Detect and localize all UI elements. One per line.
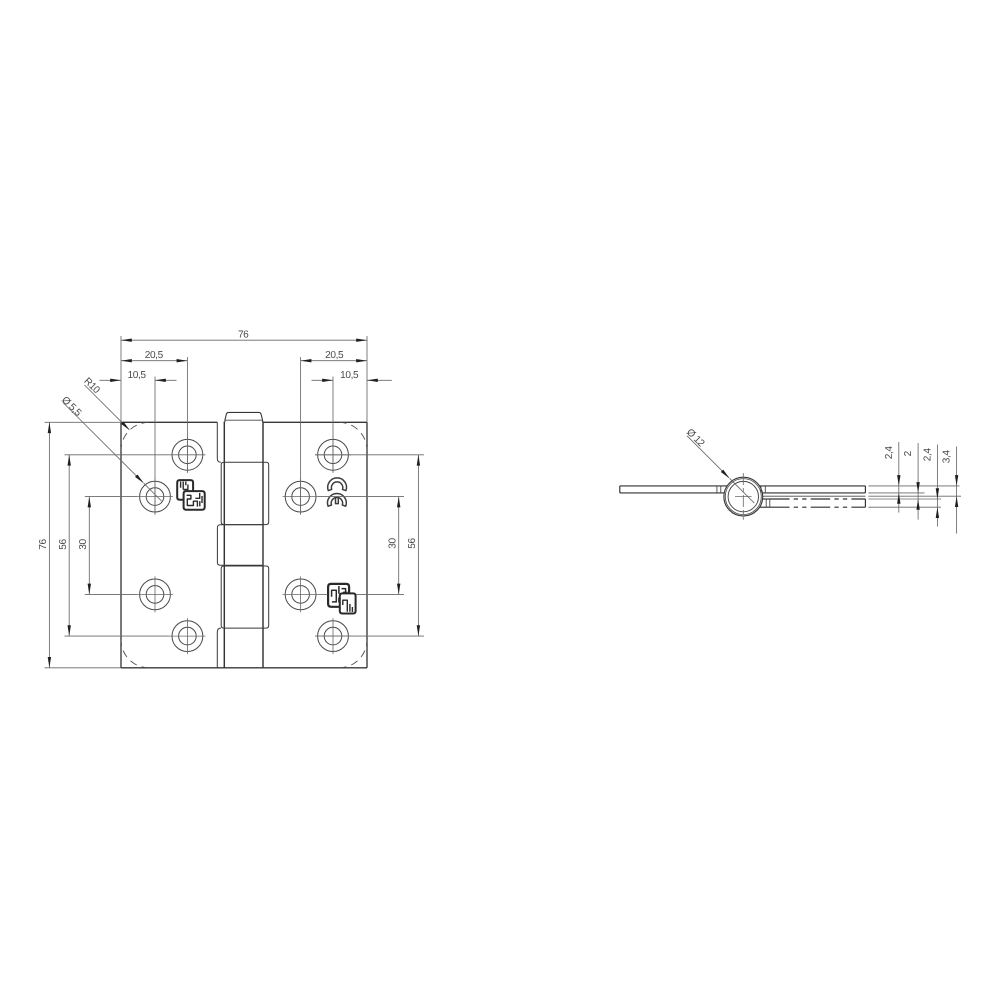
- svg-text:30: 30: [78, 539, 89, 550]
- svg-text:20,5: 20,5: [145, 350, 164, 361]
- svg-text:30: 30: [388, 538, 399, 549]
- svg-text:2,4: 2,4: [922, 448, 933, 462]
- svg-text:2,4: 2,4: [884, 446, 895, 460]
- svg-text:Ø 12: Ø 12: [684, 427, 707, 450]
- svg-text:56: 56: [407, 538, 418, 549]
- svg-text:R10: R10: [81, 376, 102, 397]
- svg-text:Ø 5,5: Ø 5,5: [59, 395, 83, 419]
- svg-text:3,4: 3,4: [942, 450, 953, 464]
- svg-text:76: 76: [38, 539, 49, 550]
- svg-text:20,5: 20,5: [325, 350, 344, 361]
- svg-text:2: 2: [903, 450, 914, 456]
- svg-text:56: 56: [58, 539, 69, 550]
- svg-text:76: 76: [238, 330, 249, 341]
- svg-text:10,5: 10,5: [128, 370, 147, 381]
- svg-text:10,5: 10,5: [340, 370, 359, 381]
